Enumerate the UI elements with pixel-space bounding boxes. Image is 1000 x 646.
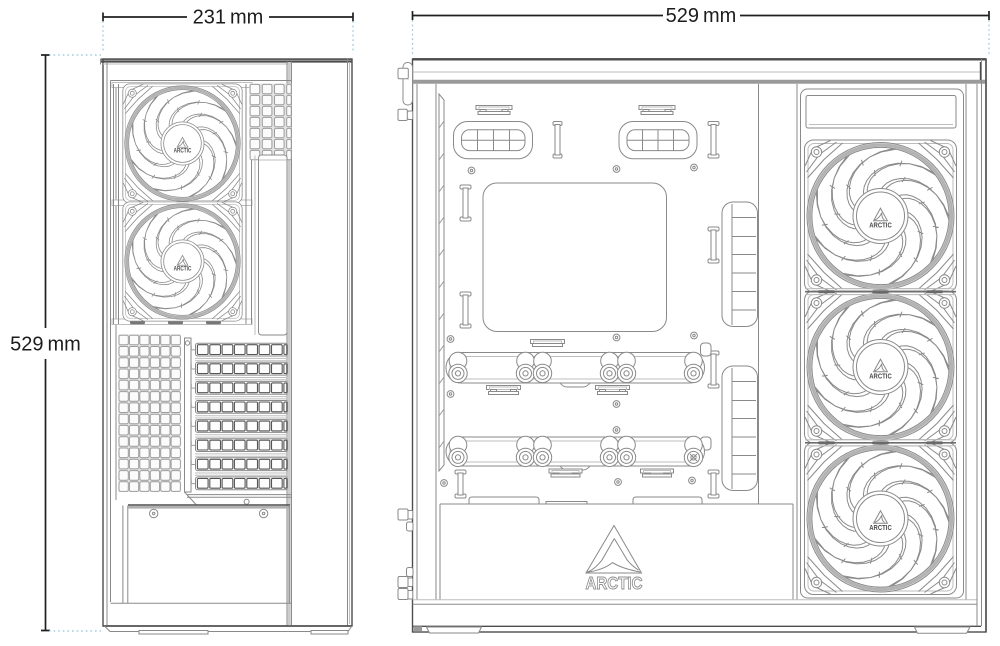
svg-text:231 mm: 231 mm: [193, 7, 264, 29]
svg-text:ARCTIC: ARCTIC: [586, 573, 643, 593]
svg-text:529 mm: 529 mm: [666, 5, 737, 27]
svg-text:529 mm: 529 mm: [10, 334, 81, 356]
